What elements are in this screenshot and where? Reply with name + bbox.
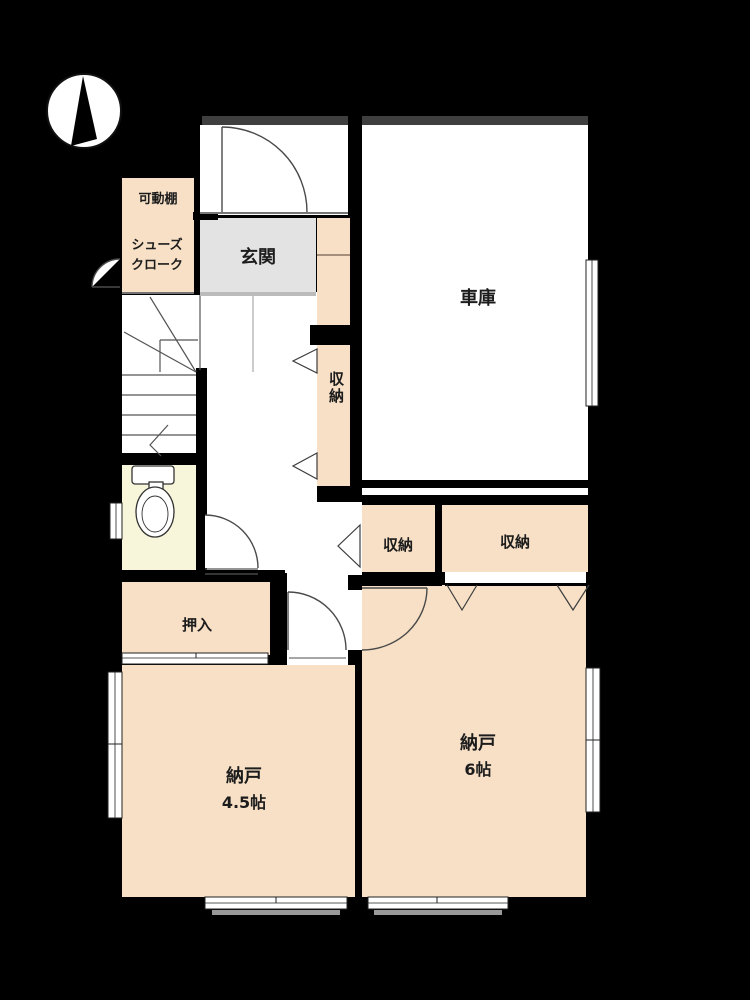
wall-oshiire-top: [113, 570, 285, 582]
label-storeroom-45jo-size: 4.5帖: [222, 793, 266, 812]
compass: [47, 74, 121, 148]
wall-closet-tall-right: [350, 343, 362, 502]
label-storeroom-6jo: 納戸: [460, 732, 496, 754]
garage-shutter-bar: [362, 116, 588, 125]
floorplan-svg: 可動棚 シューズ クローク 玄関 車庫 収納 収納 収納 押入 納戸 4.5帖 …: [0, 0, 750, 1000]
porch-shutter-bar: [202, 116, 348, 125]
shoe-cloak-room: [122, 215, 194, 292]
wall-line-closet-right: [445, 583, 586, 586]
label-shoe-cloak-1: シューズ: [131, 237, 182, 253]
label-closet-right: 収納: [500, 533, 530, 551]
wall-toilet-top: [110, 453, 207, 465]
wall-stairs-right: [196, 368, 207, 465]
garage-rear-sliver: [362, 488, 588, 495]
doorway-gap-6jo: [348, 590, 362, 650]
oshiire-sliding-door: [122, 653, 268, 664]
label-storeroom-6jo-size: 6帖: [464, 760, 491, 779]
floorplan-canvas: 可動棚 シューズ クローク 玄関 車庫 収納 収納 収納 押入 納戸 4.5帖 …: [0, 0, 750, 1000]
label-closet-left: 収納: [383, 536, 413, 554]
label-genkan: 玄関: [240, 246, 276, 268]
toilet-window: [110, 503, 122, 539]
label-shoe-cloak-2: クローク: [131, 258, 183, 273]
genkan-step-line: [200, 292, 316, 296]
hallway-upper: [200, 292, 317, 490]
closet-tall-room: [317, 343, 352, 488]
label-garage: 車庫: [460, 287, 496, 309]
shoe-cabinet: [317, 218, 350, 325]
wall-toilet-right-upper: [196, 460, 207, 515]
label-oshiire: 押入: [182, 616, 212, 634]
wall-cabinet-bottom: [310, 325, 362, 345]
garage-window: [586, 260, 598, 406]
label-storeroom-45jo: 納戸: [226, 765, 262, 787]
label-closet-tall: 収納: [327, 370, 345, 405]
hallway-lower: [205, 490, 362, 575]
wall-closet-left-bottom: [362, 572, 442, 586]
storeroom-6jo-east-window: [586, 668, 600, 812]
wall-between-closets: [435, 505, 442, 575]
closet-right-opening: [445, 572, 586, 583]
storeroom-45jo-west-window: [108, 672, 122, 818]
toilet-tank: [132, 466, 174, 484]
wall-oshiire-right: [270, 573, 287, 665]
label-movable-shelf: 可動棚: [138, 191, 177, 207]
wall-closet-tall-bottom: [317, 486, 362, 502]
storeroom-45jo-south-window: [205, 897, 347, 915]
storeroom-6jo-south-window: [368, 897, 508, 915]
